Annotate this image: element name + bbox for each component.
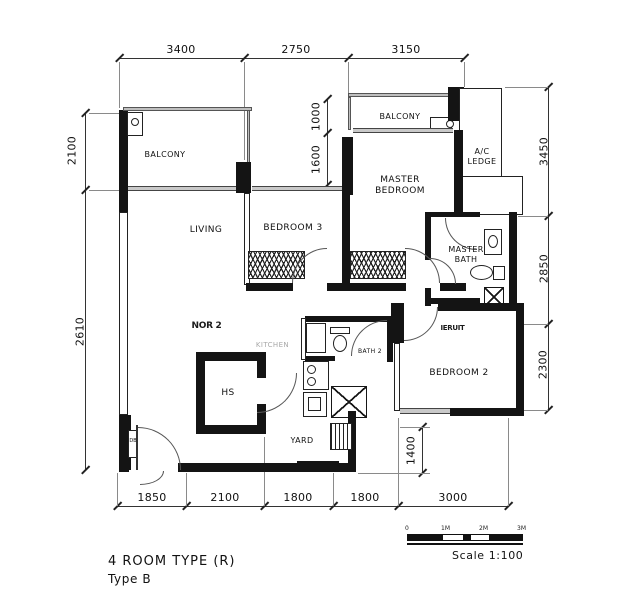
- room-label-bedroom3: BEDROOM 3: [253, 223, 333, 234]
- dim-ext: [89, 190, 119, 191]
- wall-segment: [391, 303, 404, 343]
- room-label-balcony-left: BALCONY: [125, 150, 205, 160]
- dim-ext: [348, 62, 349, 93]
- dim-ext: [89, 113, 119, 114]
- hob-burner-icon: [307, 365, 316, 374]
- balcony-railing: [123, 107, 252, 111]
- door-swing-entrance: [138, 427, 181, 470]
- dim-ext: [505, 87, 548, 88]
- dim-label-top-3: 3150: [376, 43, 436, 56]
- wall-segment: [342, 137, 353, 195]
- dim-line-bottom: [117, 506, 508, 507]
- dim-line-inner-balcony: [327, 99, 328, 185]
- dim-label-bottom-4: 1800: [335, 491, 395, 504]
- floor-plan-canvas: 3400 2750 3150 2100 2610 3450 2850 2300 …: [0, 0, 627, 600]
- kitchen-sink-basin: [308, 397, 321, 411]
- door-swing-entrance-outer: [140, 471, 164, 485]
- dim-label-bottom-1: 1850: [122, 491, 182, 504]
- dim-ext: [186, 473, 187, 506]
- wall-segment: [119, 212, 128, 415]
- dim-ext: [398, 418, 399, 506]
- toilet-cistern: [330, 327, 350, 334]
- room-label-balcony-top: BALCONY: [360, 112, 440, 122]
- overlay-text-fragment: IERUIT: [430, 324, 475, 332]
- room-label-ac-ledge: A/C LEDGE: [452, 147, 512, 167]
- room-label-bath2: BATH 2: [350, 348, 390, 356]
- wall-segment: [246, 283, 293, 291]
- hob-burner-icon: [307, 377, 316, 386]
- room-label-master-bedroom: MASTER BEDROOM: [360, 175, 440, 198]
- scale-tick-0: 0: [405, 525, 409, 532]
- room-label-bedroom2: BEDROOM 2: [419, 368, 499, 379]
- dim-label-left-1: 2100: [66, 121, 79, 181]
- balcony-railing: [348, 93, 464, 97]
- balcony-railing: [348, 97, 351, 130]
- plan-subtitle: Type B: [108, 572, 151, 586]
- balcony-sliding-door: [128, 186, 236, 191]
- wall-segment: [454, 130, 463, 216]
- wardrobe-hatch: [350, 251, 406, 279]
- room-label-master-bath: MASTER BATH: [436, 245, 496, 265]
- planter-drain-icon: [131, 118, 139, 126]
- plan-title: 4 ROOM TYPE (R): [108, 554, 236, 569]
- wall-segment: [438, 303, 523, 311]
- wall-segment: [297, 461, 339, 472]
- toilet-bowl: [470, 265, 493, 280]
- toilet-bowl: [333, 335, 347, 352]
- dim-label-right-1: 3450: [538, 122, 551, 182]
- dim-ext: [358, 473, 430, 474]
- scale-label: Scale 1:100: [452, 549, 523, 562]
- wall-segment: [342, 195, 350, 285]
- balcony-railing: [247, 110, 250, 165]
- scale-bar-baseline: [407, 543, 523, 545]
- scale-tick-1m: 1M: [441, 525, 450, 532]
- room-label-hs: HS: [208, 388, 248, 399]
- dim-ext: [518, 216, 548, 217]
- dim-ext: [508, 418, 509, 506]
- scale-tick-3m: 3M: [517, 525, 526, 532]
- dim-line-left: [85, 113, 86, 470]
- scale-tick-2m: 2M: [479, 525, 488, 532]
- dim-ext: [117, 473, 118, 506]
- dim-line-top: [119, 58, 464, 59]
- dim-label-right-2: 2850: [538, 239, 551, 299]
- hs-wall: [196, 425, 266, 434]
- wall-segment: [450, 408, 524, 416]
- dim-ext: [244, 62, 245, 160]
- planter-drain-icon: [446, 120, 454, 128]
- dim-ext: [333, 473, 334, 506]
- wall-segment: [341, 283, 406, 291]
- room-label-kitchen: KITCHEN: [245, 341, 300, 350]
- louvre-screen: [330, 423, 352, 450]
- balcony-sliding-door: [353, 128, 453, 133]
- dim-label-inner-1400: 1400: [405, 421, 418, 481]
- wall-segment: [440, 283, 466, 291]
- kitchen-hob: [303, 361, 329, 390]
- overlay-text-fragment: NOR 2: [184, 321, 229, 331]
- scale-bar: [407, 534, 523, 541]
- wall-segment: [394, 343, 400, 411]
- shower-tray: [306, 323, 326, 353]
- window: [400, 408, 452, 414]
- dim-label-right-3: 2300: [537, 335, 550, 395]
- dim-label-top-1: 3400: [151, 43, 211, 56]
- wall-segment: [119, 463, 129, 472]
- wall-segment: [516, 303, 524, 415]
- dim-label-inner-1600: 1600: [310, 130, 323, 190]
- dim-label-bottom-2: 2100: [195, 491, 255, 504]
- hs-wall: [196, 352, 266, 361]
- dim-ext: [524, 324, 548, 325]
- dim-label-top-2: 2750: [266, 43, 326, 56]
- ac-ledge-outline: [459, 176, 523, 215]
- dim-label-left-2: 2610: [74, 302, 87, 362]
- room-label-living: LIVING: [166, 225, 246, 236]
- room-label-yard: YARD: [282, 436, 322, 446]
- toilet-cistern: [493, 266, 505, 280]
- wall-segment: [425, 212, 431, 260]
- dim-line-inner-yard: [422, 427, 423, 473]
- door-swing-hs: [257, 373, 297, 413]
- wall-segment: [425, 212, 480, 217]
- room-label-db: DB: [127, 438, 139, 444]
- dim-label-bottom-5: 3000: [423, 491, 483, 504]
- dim-label-bottom-3: 1800: [268, 491, 328, 504]
- wall-segment: [509, 212, 517, 304]
- dim-ext: [464, 62, 465, 87]
- hs-wall: [196, 352, 205, 434]
- dim-ext: [119, 62, 120, 108]
- wall-segment: [236, 162, 251, 193]
- dim-ext: [524, 410, 548, 411]
- window: [252, 186, 342, 191]
